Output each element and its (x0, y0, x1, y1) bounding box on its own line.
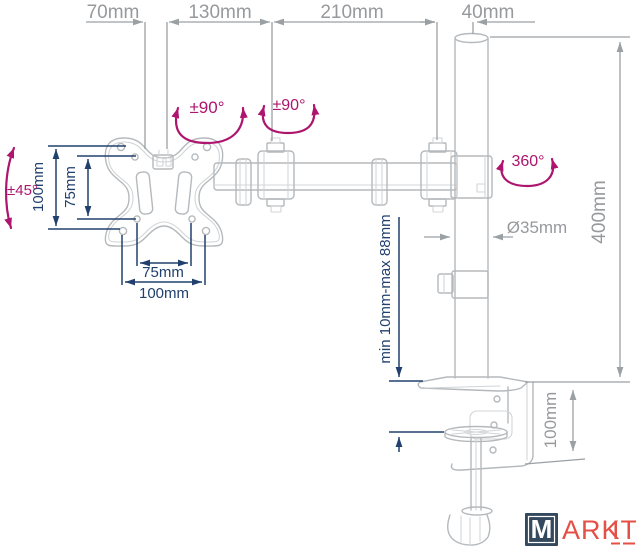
dimension-top-offset: 70mm (86, 2, 167, 149)
diagram-canvas: 70mm 130mm 210mm 40mm 400mm Ø35mm 100mm (0, 0, 636, 550)
dimension-clamp-depth: 100mm (525, 390, 585, 464)
logo-letter-m: M (531, 514, 553, 544)
rotation-joint-rear: ±90° (263, 97, 315, 133)
dim-label-130mm: 130mm (188, 2, 251, 23)
desk-clamp (418, 377, 533, 545)
logo-markit: M ARK IT (525, 513, 636, 546)
dim-label-vesa-w-75: 75mm (142, 264, 184, 281)
dim-label-vesa-w-100: 100mm (139, 285, 189, 302)
plate-clip (153, 150, 173, 169)
rotation-joint-front: ±90° (176, 98, 243, 143)
dim-label-diameter: Ø35mm (507, 218, 567, 237)
rotation-label-joint-rear: ±90° (273, 97, 306, 114)
dim-label-400mm: 400mm (589, 180, 610, 243)
dim-label-vesa-h-75: 75mm (62, 166, 79, 208)
dimension-pole-height: 400mm (490, 37, 630, 382)
rotation-label-joint-front: ±90° (189, 98, 224, 117)
dimension-clamp-range: min 10mm-max 88mm (377, 214, 444, 452)
rotation-label-tilt: ±45° (7, 182, 38, 199)
dimension-arm-rear: 210mm (274, 2, 437, 140)
diagram-page: 70mm 130mm 210mm 40mm 400mm Ø35mm 100mm (0, 0, 636, 550)
logo-text-it: IT (612, 515, 636, 545)
rotation-label-360: 360° (511, 153, 544, 170)
dim-label-clamp-depth: 100mm (541, 392, 560, 449)
cable-clip-front (236, 159, 251, 205)
height-collar (438, 271, 488, 298)
dimension-vesa-width-inner: 75mm (137, 223, 191, 281)
dim-label-210mm: 210mm (320, 2, 383, 23)
rotation-pole-swivel: 360° (501, 153, 553, 186)
hinge-joint-front (258, 138, 294, 212)
mounting-arm (214, 138, 457, 212)
dimension-pole-diameter: Ø35mm (424, 218, 567, 237)
dimension-arm-front: 130mm (169, 2, 272, 141)
vesa-plate (105, 138, 222, 246)
dim-label-70mm: 70mm (87, 2, 140, 23)
dim-label-clamp-range: min 10mm-max 88mm (377, 214, 394, 363)
rotation-tilt: ±45° (6, 148, 38, 228)
dim-label-40mm: 40mm (462, 2, 515, 23)
adjust-knob (438, 274, 453, 293)
cable-clip-rear (372, 159, 387, 205)
clamp-handle (448, 507, 492, 545)
